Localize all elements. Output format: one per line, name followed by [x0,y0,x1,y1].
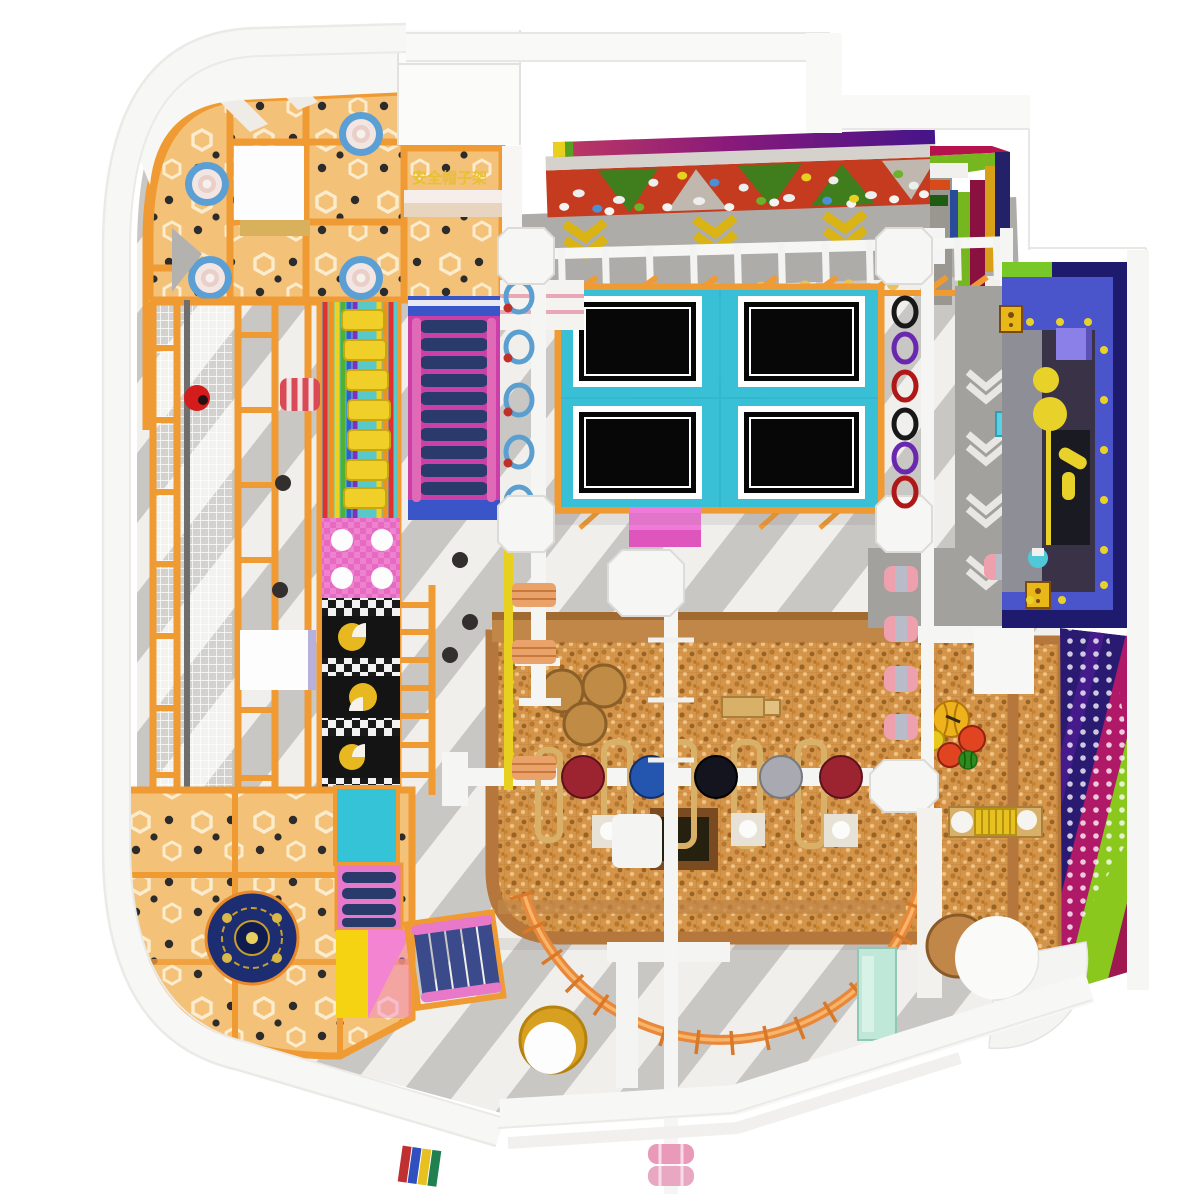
svg-text:安全帽子架: 安全帽子架 [412,169,487,187]
